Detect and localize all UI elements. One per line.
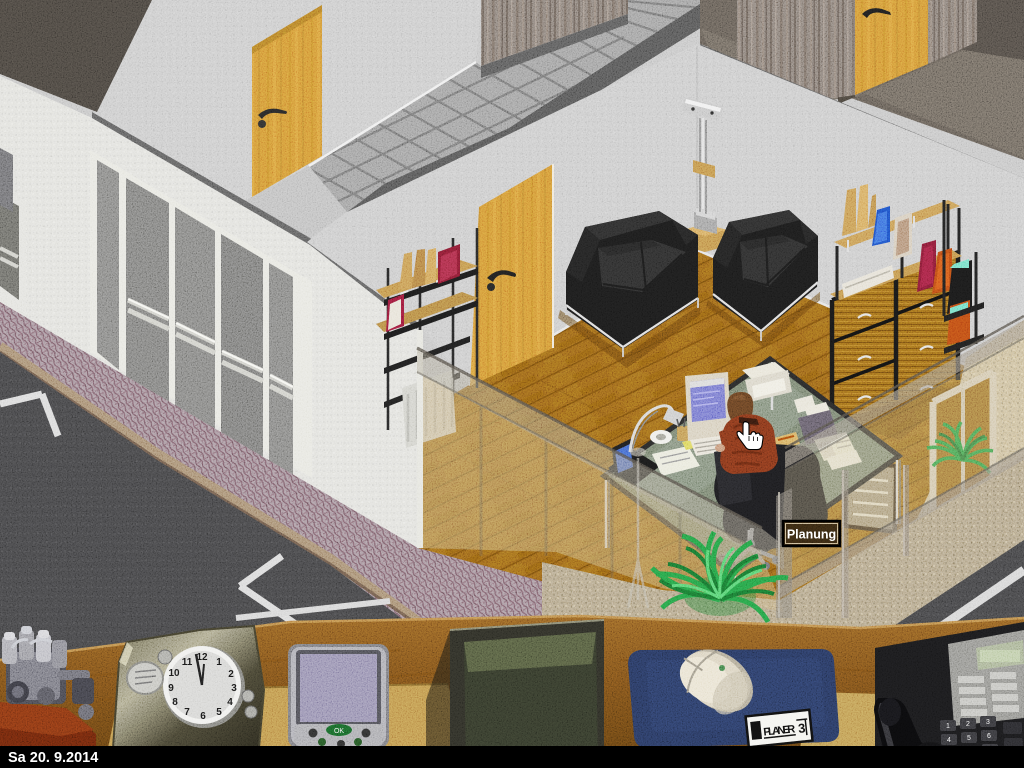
svg-text:Sa 20. 9.2014: Sa 20. 9.2014 (8, 750, 98, 766)
